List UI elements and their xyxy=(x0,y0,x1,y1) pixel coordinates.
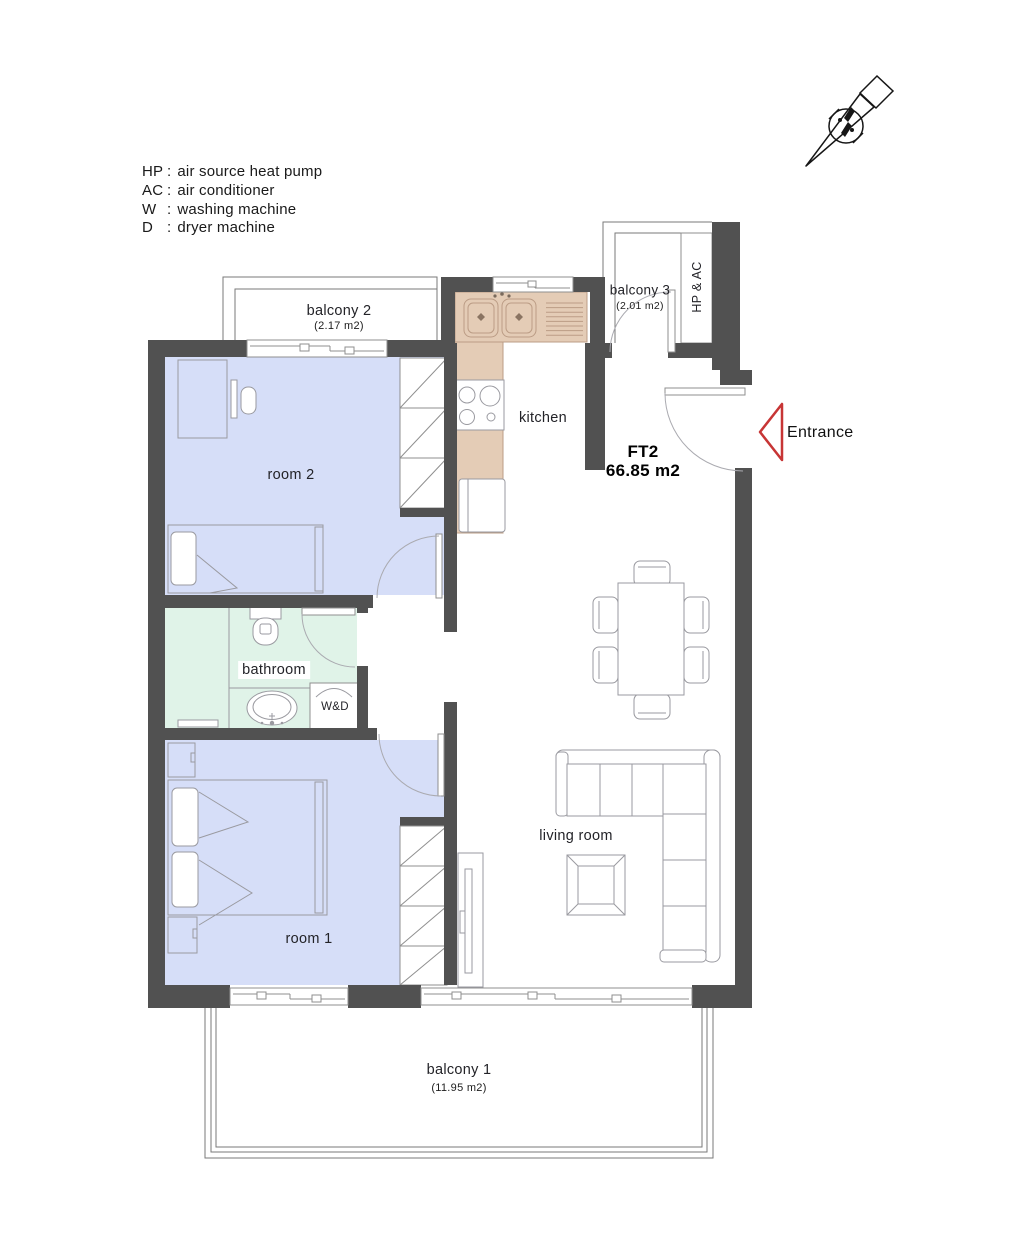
faucet-dot xyxy=(500,292,504,296)
legend-row-d: D:dryer machine xyxy=(142,219,322,238)
unit-code-label: FT2 xyxy=(627,442,658,462)
room2-window xyxy=(247,340,387,357)
balcony1-label: balcony 1 xyxy=(427,1062,492,1078)
legend-abbr: W xyxy=(142,201,167,220)
room1-window xyxy=(230,988,348,1005)
balcony2-label: balcony 2 xyxy=(307,303,372,319)
legend-colon: : xyxy=(167,163,171,182)
tv-unit-symbol xyxy=(458,853,483,987)
coffee-table-symbol xyxy=(567,855,625,915)
hp-ac-label: HP & AC xyxy=(690,261,704,312)
balcony2-area: (2.17 m2) xyxy=(314,320,364,332)
legend-desc: dryer machine xyxy=(177,219,275,238)
balcony3-area: (2.01 m2) xyxy=(616,300,664,312)
legend-colon: : xyxy=(167,201,171,220)
kitchen-label: kitchen xyxy=(519,410,567,426)
dining-set-symbol xyxy=(593,561,709,719)
bathroom-label: bathroom xyxy=(238,661,310,679)
legend-abbr: AC xyxy=(142,182,167,201)
balcony3-label: balcony 3 xyxy=(610,283,671,298)
legend-desc: washing machine xyxy=(177,201,296,220)
legend-row-ac: AC:air conditioner xyxy=(142,182,322,201)
dining-table xyxy=(618,583,684,695)
room2-wardrobe-symbol xyxy=(400,358,447,517)
legend-row-hp: HP:air source heat pump xyxy=(142,163,322,182)
entrance-arrow-icon xyxy=(760,404,782,460)
floorplan-page: HP:air source heat pump AC:air condition… xyxy=(0,0,1015,1251)
room1-wardrobe-symbol xyxy=(400,817,447,985)
room2-label: room 2 xyxy=(268,467,315,483)
unit-area-label: 66.85 m2 xyxy=(606,461,680,481)
bathroom-sink-symbol xyxy=(247,691,297,725)
legend-colon: : xyxy=(167,182,171,201)
balcony1-area: (11.95 m2) xyxy=(431,1082,486,1094)
legend-abbr: HP xyxy=(142,163,167,182)
legend-desc: air source heat pump xyxy=(177,163,322,182)
entrance-door xyxy=(665,388,745,471)
faucet-dot xyxy=(493,294,496,297)
living-room-window xyxy=(421,988,692,1005)
kitchen-appliance-symbol xyxy=(459,479,505,532)
kitchen-window xyxy=(493,277,573,292)
room1-label: room 1 xyxy=(286,931,333,947)
legend-abbr: D xyxy=(142,219,167,238)
legend: HP:air source heat pump AC:air condition… xyxy=(142,163,322,238)
entrance-label: Entrance xyxy=(787,424,853,442)
kitchen-cooktop-symbol xyxy=(452,380,504,430)
legend-colon: : xyxy=(167,219,171,238)
washer-dryer-label: W&D xyxy=(321,701,349,713)
legend-desc: air conditioner xyxy=(177,182,274,201)
toilet-symbol xyxy=(250,607,281,645)
faucet-dot xyxy=(507,294,510,297)
legend-row-w: W:washing machine xyxy=(142,201,322,220)
living-room-label: living room xyxy=(539,828,612,844)
shower-drain xyxy=(178,720,218,727)
north-compass-icon xyxy=(806,76,893,166)
